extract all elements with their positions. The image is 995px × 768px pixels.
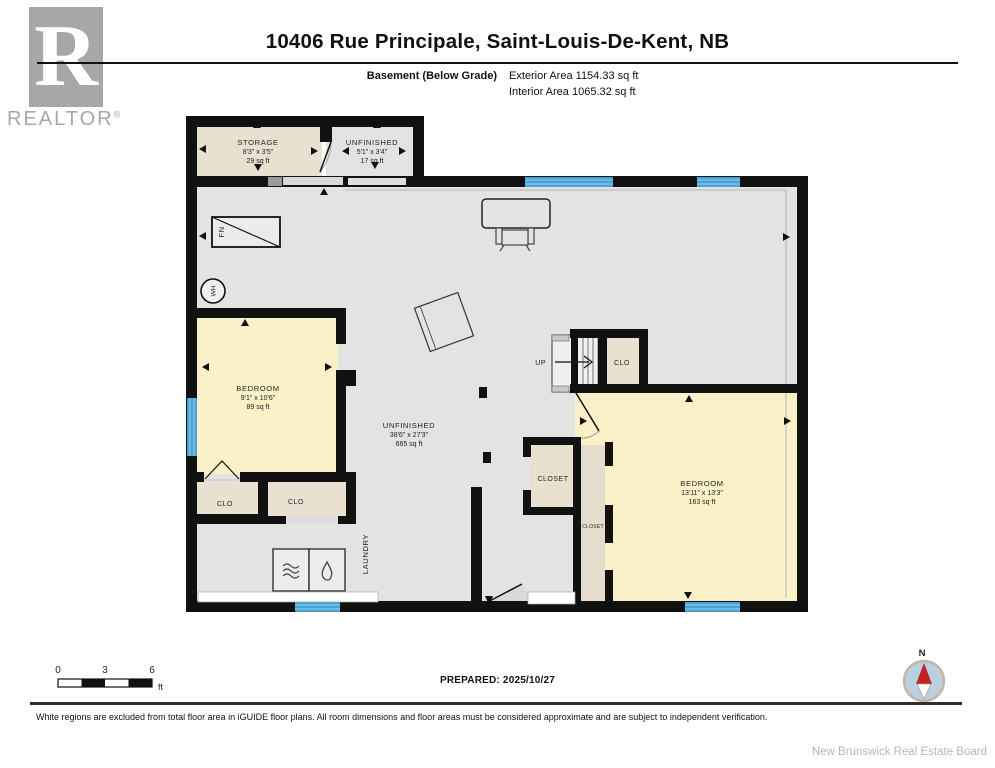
real-estate-board-credit: New Brunswick Real Estate Board (812, 746, 987, 758)
realtor-logo: R (29, 7, 103, 107)
room-area: 665 sq ft (396, 441, 423, 448)
room-dims: 13'11" x 13'3" (681, 490, 723, 497)
closet-label: CLOSET (582, 524, 604, 530)
room-dims: 38'6" x 27'3" (390, 432, 429, 439)
washer-icon (273, 549, 309, 591)
room-area: 163 sq ft (689, 499, 716, 506)
room-name: UNFINISHED (346, 138, 398, 147)
room-name: UNFINISHED (383, 421, 435, 430)
room-dims: 9'1" x 10'6" (241, 395, 276, 402)
room-dims: 5'1" x 3'4" (357, 149, 388, 156)
room-area: 29 sq ft (247, 158, 270, 165)
water-heater-icon: WH (201, 279, 225, 303)
clo-label: CLO (288, 499, 304, 506)
exterior-area-value: Exterior Area 1154.33 sq ft (509, 70, 638, 82)
laundry-label: LAUNDRY (361, 534, 370, 574)
header-rule-line (37, 62, 958, 64)
water-heater-label: WH (211, 285, 218, 296)
compass-north-label: N (919, 648, 926, 659)
clo-label: CLO (217, 501, 233, 508)
floor-fills (190, 122, 802, 606)
room-name: BEDROOM (680, 479, 723, 488)
interior-area-value: Interior Area 1065.32 sq ft (509, 86, 636, 98)
furnace-label: FN (217, 226, 226, 237)
dryer-icon (309, 549, 345, 591)
footer-divider-line (30, 702, 962, 705)
stairs-up-label: UP (535, 360, 546, 367)
room-dims: 8'3" x 3'5" (243, 149, 274, 156)
realtor-wordmark: REALTOR® (7, 108, 122, 131)
clo-label: CLO (614, 360, 630, 367)
disclaimer-text: White regions are excluded from total fl… (36, 712, 767, 722)
room-name: BEDROOM (236, 384, 279, 393)
realtor-logo-r: R (34, 9, 98, 105)
furnace-icon: FN (212, 217, 280, 247)
floorplan-page: FN WH (0, 0, 995, 768)
prepared-date: PREPARED: 2025/10/27 (0, 675, 995, 686)
floorplan-drawing: FN WH (0, 0, 995, 768)
page-title: 10406 Rue Principale, Saint-Louis-De-Ken… (0, 30, 995, 54)
registered-mark: ® (114, 109, 123, 119)
room-area: 89 sq ft (247, 404, 270, 411)
room-area: 17 sq ft (361, 158, 384, 165)
stairs-up (552, 335, 600, 392)
realtor-wordmark-text: REALTOR (7, 108, 114, 130)
room-name: STORAGE (237, 138, 278, 147)
floor-label: Basement (Below Grade) (0, 70, 497, 82)
closet-label: CLOSET (537, 476, 568, 483)
